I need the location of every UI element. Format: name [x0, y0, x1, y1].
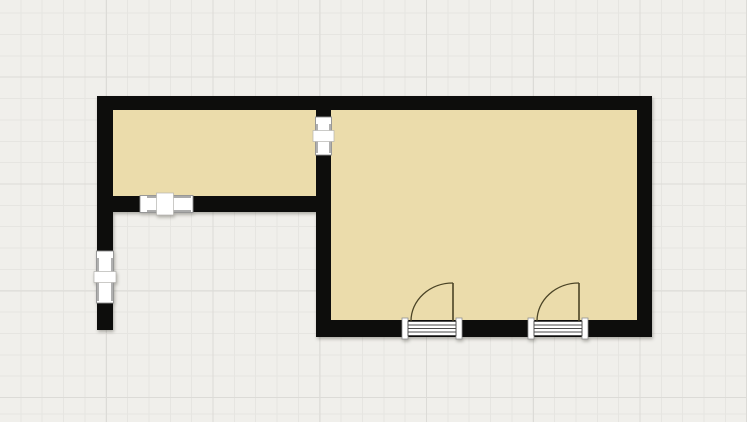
window-interior-wall[interactable] — [313, 117, 334, 155]
wall-right[interactable] — [637, 96, 652, 337]
window-handle — [94, 272, 116, 283]
window-left-room-south[interactable] — [140, 193, 193, 215]
door-jamb — [456, 318, 462, 339]
window-left-wall[interactable] — [94, 251, 116, 303]
floorplan-svg — [0, 0, 747, 422]
wall-right-room-bottom[interactable] — [316, 320, 652, 337]
window-handle — [157, 193, 174, 215]
door-jamb — [528, 318, 534, 339]
door-jamb — [402, 318, 408, 339]
wall-left-room-bottom[interactable] — [97, 196, 331, 212]
wall-top[interactable] — [97, 96, 652, 110]
window-handle — [313, 131, 334, 142]
door-jamb — [582, 318, 588, 339]
room-floor-right[interactable] — [331, 110, 637, 320]
floorplan — [94, 96, 652, 339]
editor-canvas[interactable] — [0, 0, 747, 422]
room-floor-left[interactable] — [113, 110, 316, 196]
